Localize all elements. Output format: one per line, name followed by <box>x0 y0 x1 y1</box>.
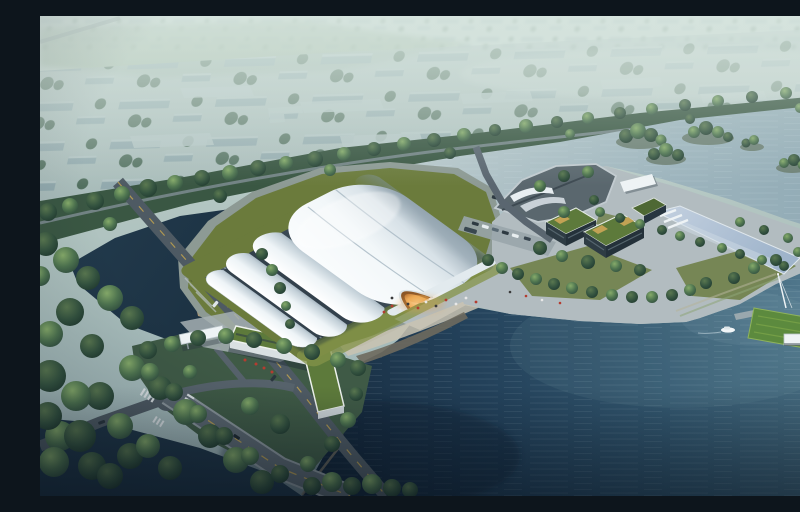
architectural-rendering: Bird's-eye architectural visualization: … <box>40 16 800 496</box>
rendering-canvas: Aerial rendering of a lakeside shell-roo… <box>40 16 800 496</box>
